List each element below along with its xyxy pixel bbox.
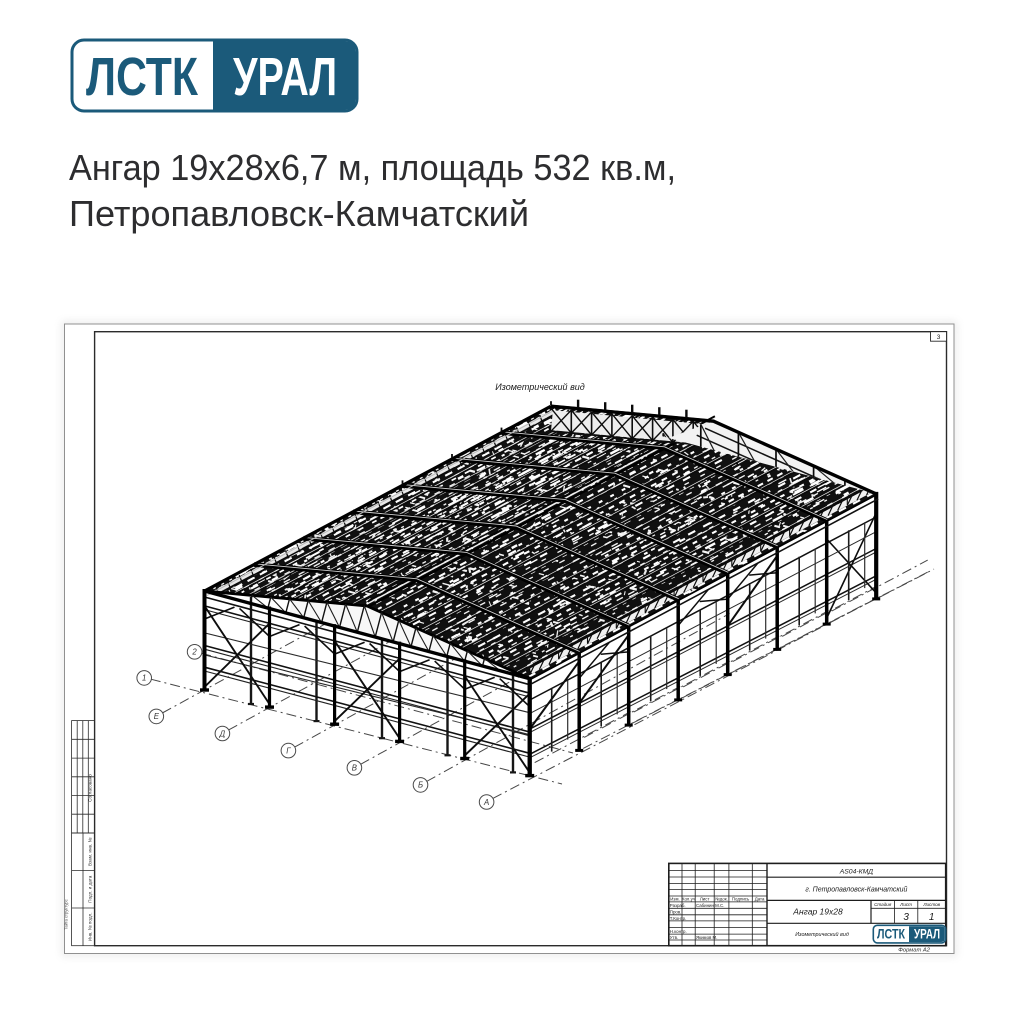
svg-text:Изометрический вид: Изометрический вид [795, 931, 849, 938]
svg-text:Разраб.: Разраб. [670, 903, 686, 908]
svg-text:Сабинин М.С.: Сабинин М.С. [696, 903, 724, 908]
svg-text:Ангар 19х28: Ангар 19х28 [792, 907, 843, 917]
svg-text:Якимов М.: Якимов М. [696, 935, 717, 940]
svg-text:Утв.: Утв. [670, 935, 678, 940]
svg-text:Изометрический вид: Изометрический вид [495, 382, 585, 392]
svg-text:Н.контр.: Н.контр. [670, 929, 687, 934]
svg-text:УРАЛ: УРАЛ [914, 927, 940, 942]
svg-text:Д: Д [219, 729, 226, 738]
svg-text:Кол.уч: Кол.уч [682, 896, 695, 901]
svg-text:Ангар 19х28х6,7 м, площадь 532: Ангар 19х28х6,7 м, площадь 532 кв.м, [69, 147, 676, 188]
svg-text:1: 1 [142, 674, 146, 683]
svg-text:№док.: №док. [715, 896, 728, 901]
svg-text:Тайга структурс: Тайга структурс [64, 899, 69, 930]
svg-text:Пров.: Пров. [670, 910, 682, 915]
svg-text:2: 2 [191, 648, 197, 657]
svg-text:3: 3 [937, 334, 941, 341]
svg-text:Г: Г [286, 746, 291, 755]
svg-text:Дата: Дата [755, 896, 765, 901]
svg-text:АS04-КМД: АS04-КМД [839, 869, 874, 876]
svg-text:А: А [483, 798, 489, 807]
svg-text:г. Петропавловск-Камчатский: г. Петропавловск-Камчатский [805, 886, 907, 894]
svg-text:Взам. инв. №: Взам. инв. № [88, 838, 93, 867]
svg-text:Подп. и дата: Подп. и дата [88, 875, 93, 903]
svg-text:УРАЛ: УРАЛ [233, 47, 337, 107]
svg-text:Лист: Лист [700, 896, 710, 901]
svg-text:Петропавловск-Камчатский: Петропавловск-Камчатский [69, 193, 529, 234]
svg-text:Е: Е [154, 712, 160, 721]
svg-text:ЛСТК: ЛСТК [86, 47, 199, 107]
svg-text:В: В [352, 764, 357, 773]
svg-text:3: 3 [903, 912, 909, 923]
svg-text:Формат А2: Формат А2 [898, 948, 930, 954]
svg-text:Изм.: Изм. [670, 896, 679, 901]
svg-text:Т.Контр.: Т.Контр. [670, 916, 687, 921]
svg-text:Стадия: Стадия [874, 902, 892, 907]
svg-text:Лист: Лист [899, 902, 912, 907]
svg-text:Подпись: Подпись [732, 896, 750, 901]
svg-text:Б: Б [418, 781, 423, 790]
svg-text:Согласовано: Согласовано [88, 774, 93, 802]
svg-text:Инв. № подл.: Инв. № подл. [88, 912, 93, 941]
svg-text:ЛСТК: ЛСТК [877, 927, 906, 942]
svg-text:Листов: Листов [922, 902, 940, 907]
svg-text:1: 1 [929, 912, 935, 923]
